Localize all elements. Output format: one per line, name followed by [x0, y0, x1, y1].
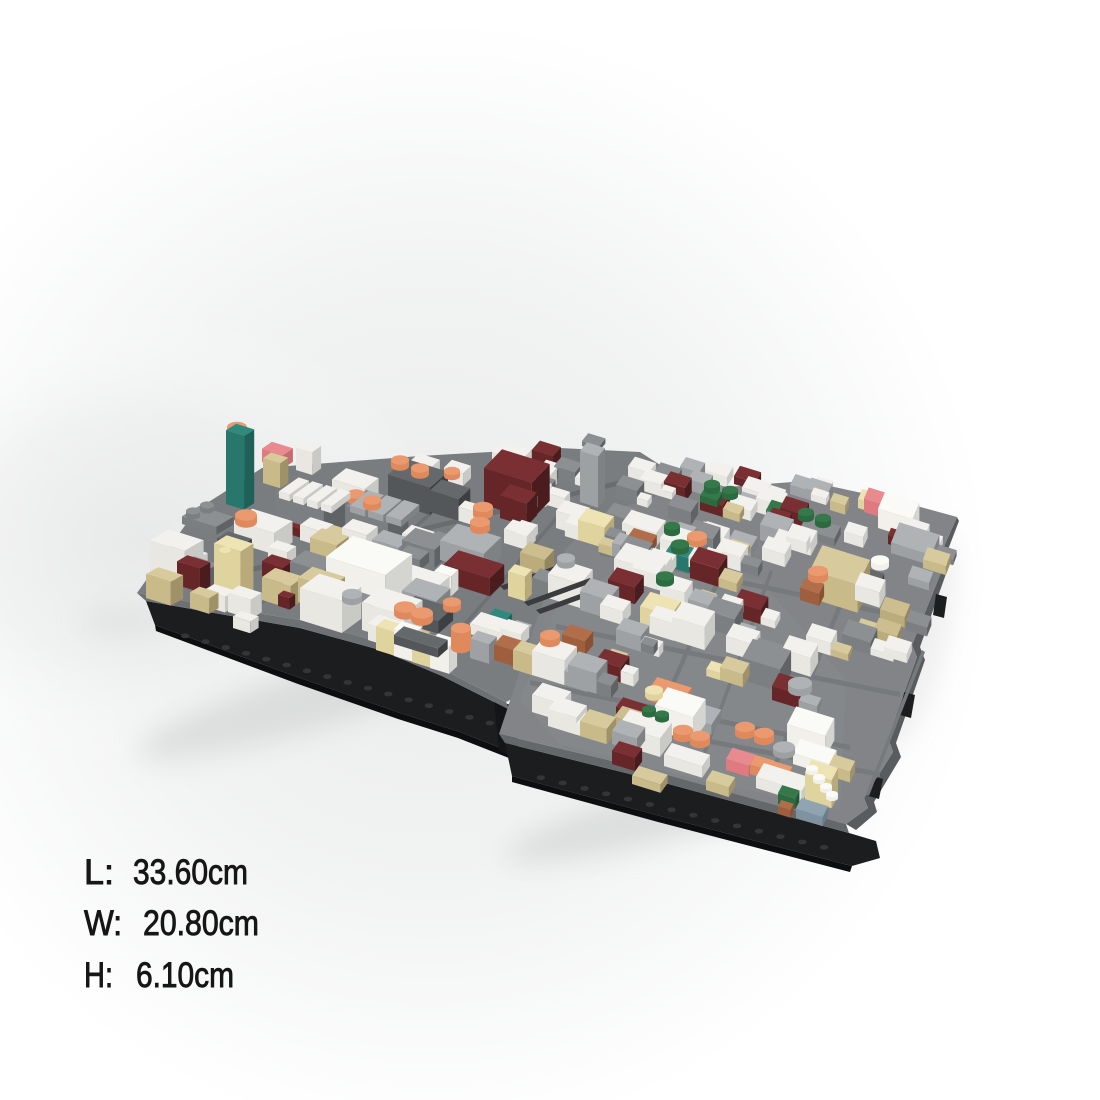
svg-text:6.10cm: 6.10cm — [136, 956, 234, 995]
svg-text:L:: L: — [84, 853, 114, 892]
svg-text:H:: H: — [84, 956, 113, 995]
svg-text:20.80cm: 20.80cm — [143, 904, 259, 943]
svg-text:W:: W: — [84, 904, 122, 943]
svg-text:33.60cm: 33.60cm — [133, 853, 248, 892]
